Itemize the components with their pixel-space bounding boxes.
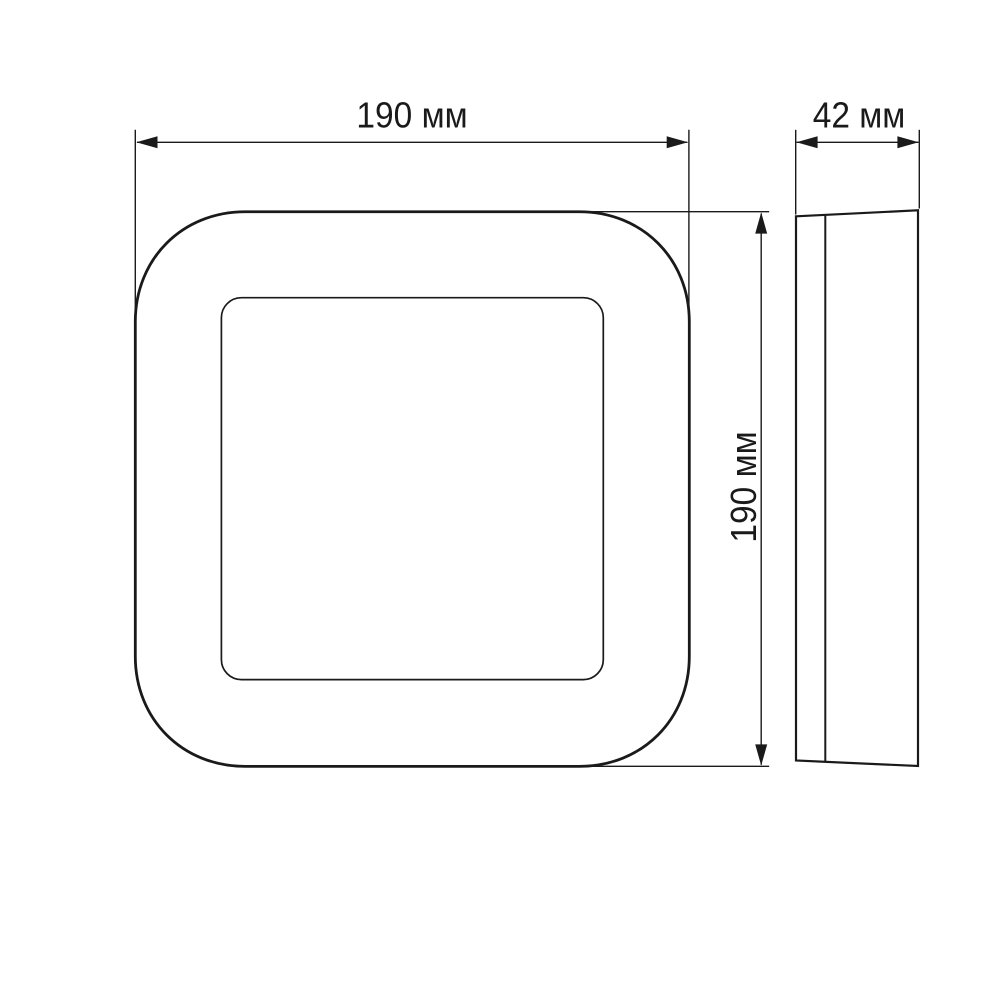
svg-text:190 мм: 190 мм xyxy=(725,431,764,542)
svg-text:190 мм: 190 мм xyxy=(356,96,467,135)
svg-text:42 мм: 42 мм xyxy=(813,96,906,135)
